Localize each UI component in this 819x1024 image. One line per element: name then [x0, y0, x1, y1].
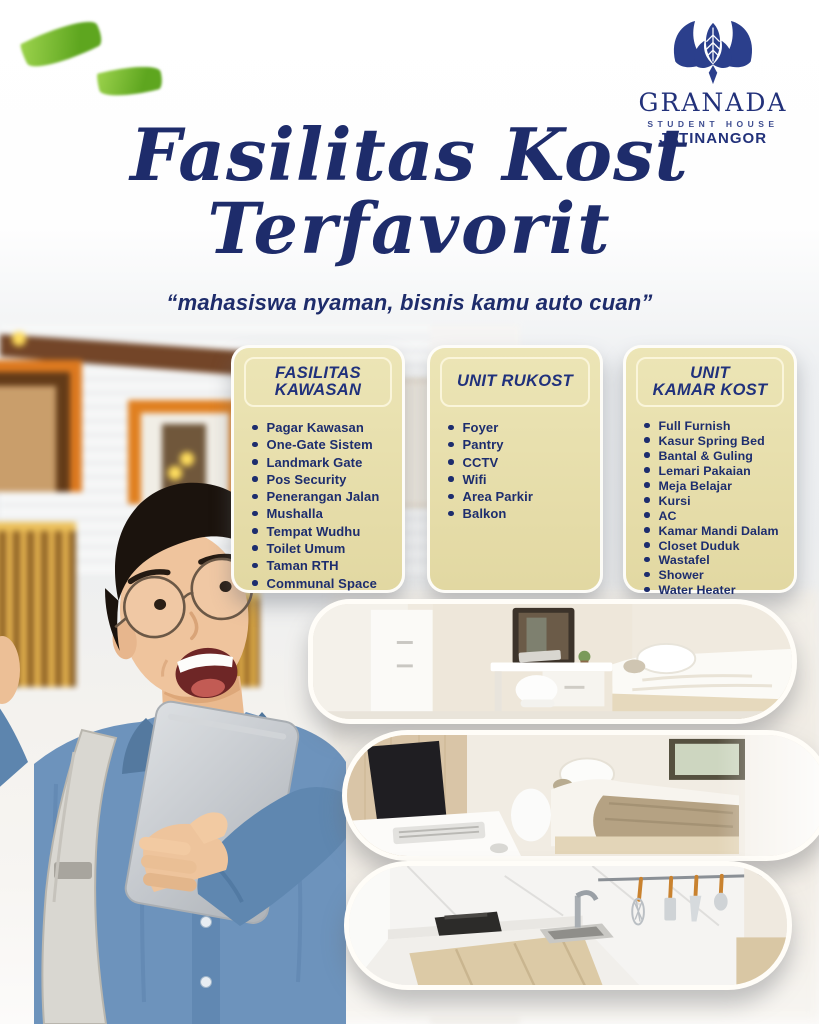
bullet-icon [644, 497, 650, 503]
bullet-icon [644, 587, 650, 593]
poster-title: Fasilitas Kost Terfavorit [0, 118, 819, 266]
poster-tagline: “mahasiswa nyaman, bisnis kamu auto cuan… [0, 290, 819, 316]
bullet-icon [644, 542, 650, 548]
facility-item: Shower [644, 568, 784, 583]
card-title: FASILITASKAWASAN [244, 357, 392, 407]
kitchen-pantry-photo [344, 861, 792, 990]
card-title: UNIT RUKOST [440, 357, 590, 407]
bullet-icon [252, 511, 258, 517]
facility-item: Pantry [448, 436, 590, 453]
bullet-icon [644, 572, 650, 578]
facility-item: Full Furnish [644, 419, 784, 434]
bullet-icon [448, 459, 454, 465]
strap-buckle [54, 862, 92, 879]
facility-item: Foyer [448, 419, 590, 436]
kost-facilities-poster: GRANADA STUDENT HOUSE JATINANGOR Fasilit… [0, 0, 819, 1024]
bullet-icon [448, 425, 454, 431]
card-unit-kamar-kost: UNITKAMAR KOST Full FurnishKasur Spring … [623, 345, 797, 593]
facility-item: Taman RTH [252, 557, 392, 574]
card-title: UNITKAMAR KOST [636, 357, 784, 407]
title-line-2: Terfavorit [0, 193, 819, 266]
facility-item: Wastafel [644, 553, 784, 568]
facility-item: Wifi [448, 471, 590, 488]
card-fasilitas-kawasan: FASILITASKAWASAN Pagar KawasanOne-Gate S… [231, 345, 405, 593]
bullet-icon [644, 423, 650, 429]
bullet-icon [644, 437, 650, 443]
bullet-icon [644, 482, 650, 488]
bullet-icon [644, 452, 650, 458]
bullet-icon [252, 459, 258, 465]
facility-item: Water Heater [644, 583, 784, 598]
bullet-icon [448, 476, 454, 482]
bullet-icon [448, 494, 454, 500]
facility-item: Lemari Pakaian [644, 464, 784, 479]
leaf-icon [95, 59, 164, 104]
card-unit-rukost: UNIT RUKOST FoyerPantryCCTVWifiArea Park… [427, 345, 603, 593]
facility-item: Bantal & Guling [644, 449, 784, 464]
bullet-icon [644, 557, 650, 563]
facility-item: Kasur Spring Bed [644, 434, 784, 449]
bullet-icon [448, 511, 454, 517]
bullet-icon [644, 512, 650, 518]
facility-item: AC [644, 509, 784, 524]
bullet-icon [644, 527, 650, 533]
facility-item: CCTV [448, 454, 590, 471]
facility-item: Balkon [448, 505, 590, 522]
facility-item: Kamar Mandi Dalam [644, 524, 784, 539]
facility-item: Toilet Umum [252, 540, 392, 557]
facility-item: Penerangan Jalan [252, 488, 392, 505]
facility-item: Area Parkir [448, 488, 590, 505]
facility-item: Kursi [644, 494, 784, 509]
facility-item: Pos Security [252, 471, 392, 488]
facility-list: Pagar KawasanOne-Gate SistemLandmark Gat… [244, 419, 392, 592]
bullet-icon [252, 563, 258, 569]
bullet-icon [252, 442, 258, 448]
bullet-icon [252, 476, 258, 482]
facility-list: Full FurnishKasur Spring BedBantal & Gul… [636, 419, 784, 598]
facility-item: Closet Duduk [644, 539, 784, 554]
bedroom-bed-photo [342, 730, 819, 861]
wall-lamp-glow [10, 330, 28, 348]
bullet-icon [644, 467, 650, 473]
facility-list: FoyerPantryCCTVWifiArea ParkirBalkon [440, 419, 590, 523]
facility-item: One-Gate Sistem [252, 436, 392, 453]
facility-item: Meja Belajar [644, 479, 784, 494]
bullet-icon [252, 494, 258, 500]
bullet-icon [252, 580, 258, 586]
title-line-1: Fasilitas Kost [0, 118, 819, 193]
raised-fist [0, 636, 20, 704]
facility-item: Communal Space [252, 575, 392, 592]
bedroom-study-photo [308, 599, 797, 724]
facility-item: Tempat Wudhu [252, 523, 392, 540]
leaf-icon [18, 10, 106, 77]
bullet-icon [448, 442, 454, 448]
facility-item: Landmark Gate [252, 454, 392, 471]
bullet-icon [252, 545, 258, 551]
facility-item: Mushalla [252, 505, 392, 522]
bullet-icon [252, 528, 258, 534]
facility-item: Pagar Kawasan [252, 419, 392, 436]
granada-lotus-icon [665, 20, 761, 86]
bullet-icon [252, 425, 258, 431]
